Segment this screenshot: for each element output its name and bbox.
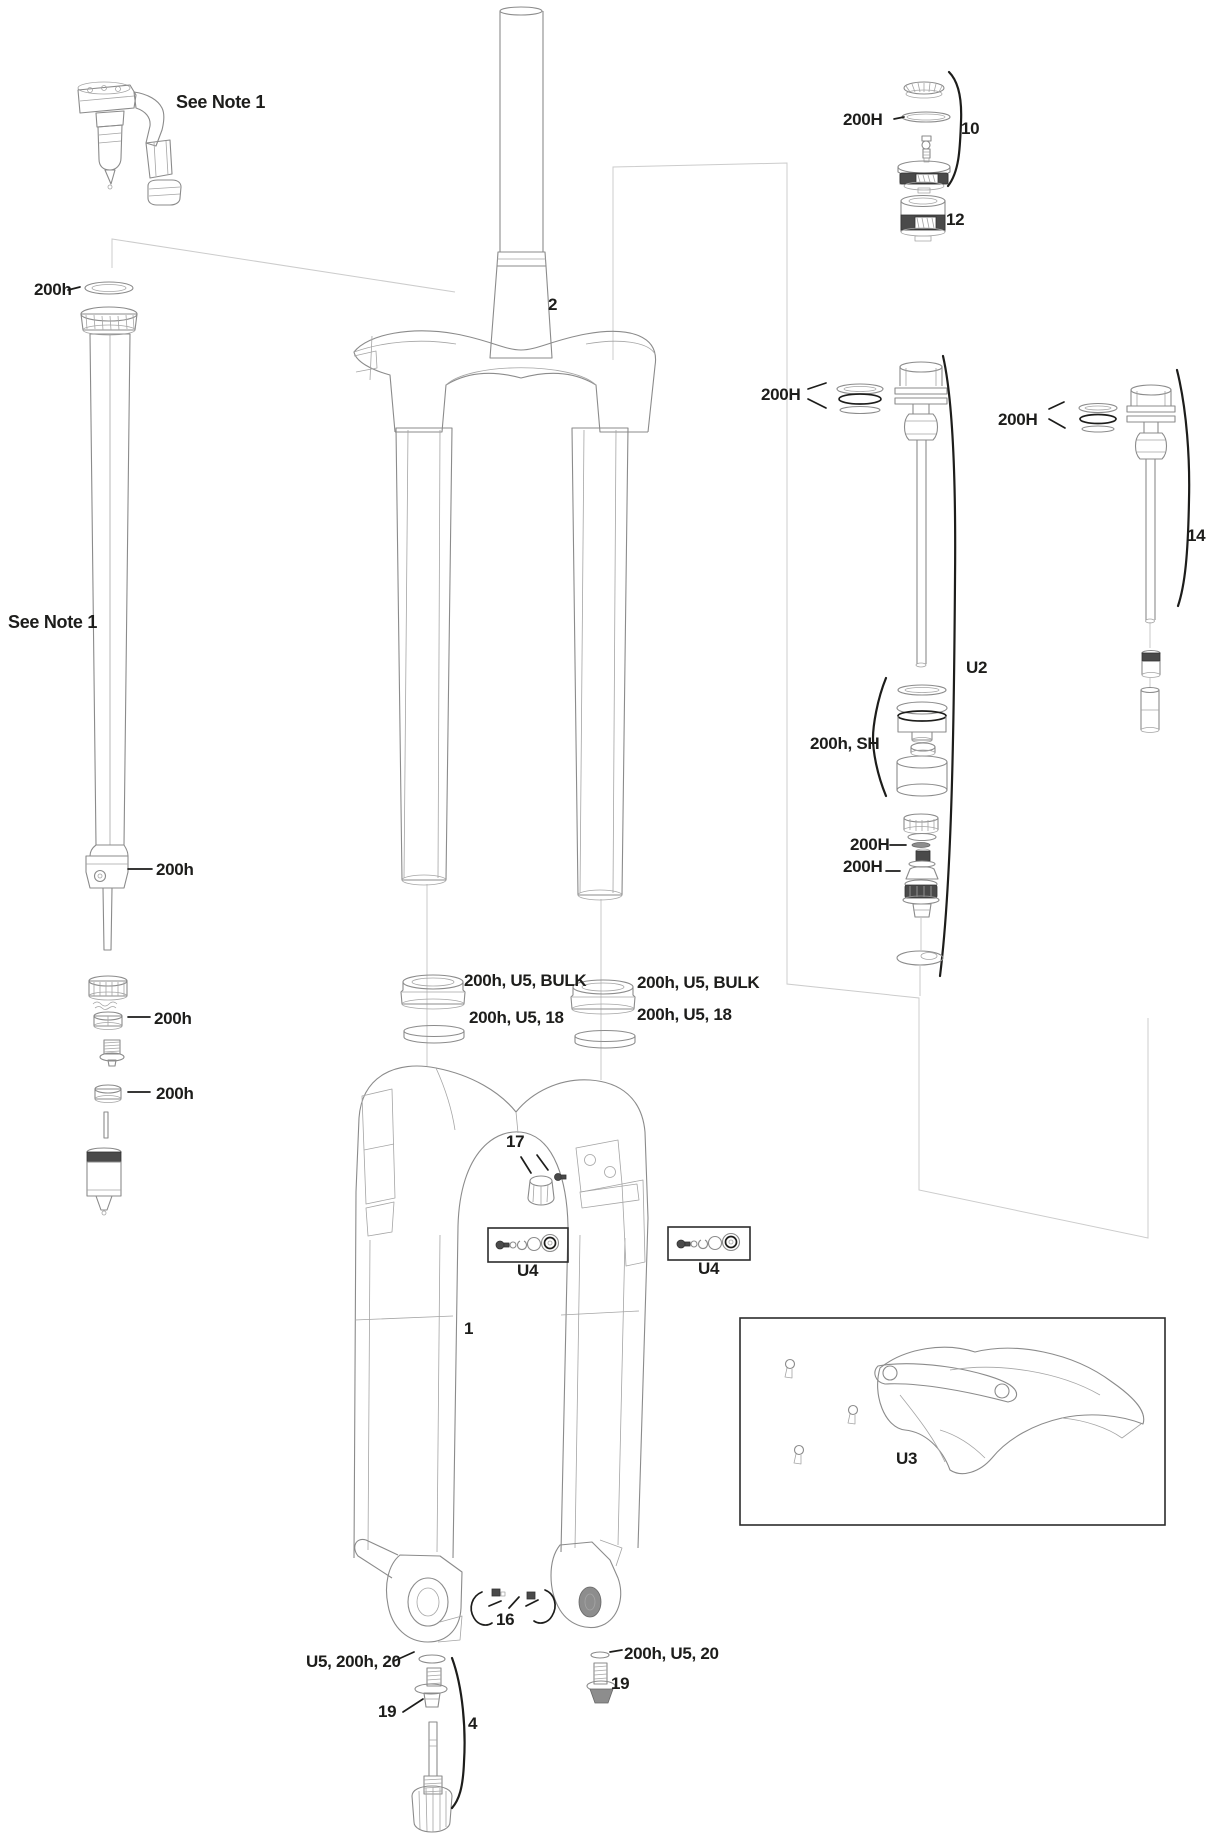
crown-steerer-drawing [354, 7, 656, 900]
label-air-cap-group: 10 [961, 119, 979, 139]
label-lower-legs: 1 [464, 1319, 473, 1339]
label-leader-ticks [68, 117, 1065, 1712]
label-shaft-bolt-left-group: U5, 200h, 20 [306, 1652, 401, 1672]
label-see-note-left: See Note 1 [8, 612, 97, 633]
fender-screws [785, 1360, 858, 1465]
label-foam-ring-right: 200h, U5, 18 [637, 1005, 732, 1025]
rebound-stack-drawing [897, 834, 943, 966]
label-foam-ring-left: 200h, U5, 18 [469, 1008, 564, 1028]
label-shaft-rings-right: 200H [998, 410, 1037, 430]
label-shaft-bolt-left: 19 [378, 1702, 396, 1722]
seal-head-drawing [873, 678, 947, 834]
label-shaft-bolt-right-group: 200h, U5, 20 [624, 1644, 719, 1664]
label-fender-kit: U3 [896, 1449, 917, 1469]
hardware-kit-left-contents [496, 1235, 559, 1252]
label-damper-ring-lower: 200h [156, 1084, 194, 1104]
label-air-cap-oring: 200H [843, 110, 882, 130]
label-damper-top-seal: 200h [34, 280, 72, 300]
label-damper-assembly-mid: U2 [966, 658, 987, 678]
label-damper-collar: 200h [156, 860, 194, 880]
lower-legs-drawing [354, 1066, 648, 1642]
hardware-kit-right-contents [677, 1234, 740, 1251]
label-dust-seal-right: 200h, U5, BULK [637, 973, 759, 993]
label-shaft-bolt-right: 19 [611, 1674, 629, 1694]
rebound-knob-drawing [412, 1655, 465, 1832]
mid-damper-drawing [837, 356, 955, 976]
remote-lockout-drawing [78, 82, 181, 205]
label-steerer: 2 [548, 295, 557, 315]
label-seal-head-group: 200h, SH [810, 734, 879, 754]
diagram-line-art [0, 0, 1214, 1835]
label-shaft-rings-mid: 200H [761, 385, 800, 405]
fender-kit-box [740, 1318, 1165, 1525]
label-air-piston: 12 [946, 210, 964, 230]
hardware-kit-boxes [488, 1227, 750, 1262]
label-compression-knob: 17 [506, 1132, 524, 1152]
parts-diagram-page: See Note 1 200h See Note 1 200h 200h 200… [0, 0, 1214, 1835]
label-hardware-kit-right: U4 [698, 1259, 719, 1279]
label-dust-seal-left: 200h, U5, BULK [464, 971, 586, 991]
label-damper-shaft-right: 14 [1187, 526, 1205, 546]
leader-lines [112, 163, 1150, 1238]
left-damper-drawing [81, 282, 137, 1215]
right-damper-drawing [1079, 370, 1189, 733]
label-rebound-shim: 200H [850, 835, 889, 855]
label-see-note-top: See Note 1 [176, 92, 265, 113]
label-rebound-spacer: 200H [843, 857, 882, 877]
label-rebound-knob-group: 4 [468, 1714, 477, 1734]
label-hardware-kit-left: U4 [517, 1261, 538, 1281]
label-axle-clips: 16 [496, 1610, 514, 1630]
label-damper-ring-upper: 200h [154, 1009, 192, 1029]
